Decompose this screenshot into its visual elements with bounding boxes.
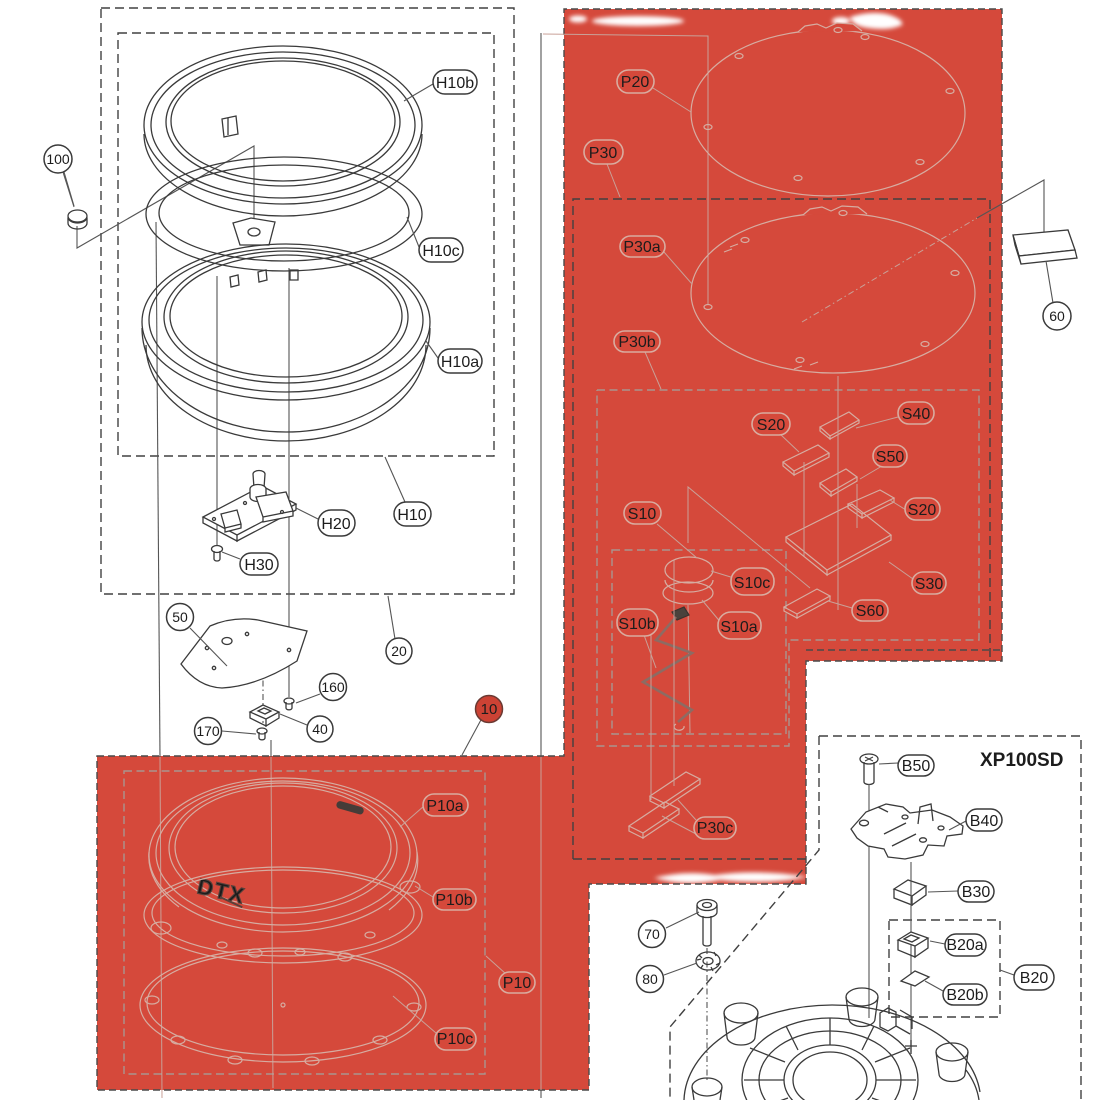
svg-text:P10b: P10b	[435, 892, 472, 909]
svg-text:H10c: H10c	[422, 243, 459, 260]
svg-text:XP100SD: XP100SD	[980, 750, 1063, 771]
svg-text:70: 70	[644, 926, 660, 942]
svg-text:H30: H30	[244, 557, 273, 574]
svg-text:S30: S30	[915, 576, 944, 593]
svg-text:S50: S50	[876, 449, 905, 466]
svg-text:H10a: H10a	[441, 354, 479, 371]
svg-text:P10c: P10c	[437, 1031, 473, 1048]
svg-text:P30c: P30c	[697, 820, 733, 837]
svg-text:B50: B50	[902, 758, 931, 775]
svg-text:50: 50	[172, 609, 188, 625]
svg-text:10: 10	[481, 701, 498, 718]
svg-text:P30a: P30a	[623, 239, 660, 256]
svg-text:B20: B20	[1020, 970, 1049, 987]
svg-text:H10b: H10b	[436, 75, 474, 92]
svg-text:20: 20	[391, 643, 407, 659]
svg-text:60: 60	[1049, 308, 1065, 324]
svg-text:170: 170	[196, 723, 220, 739]
svg-text:S10b: S10b	[618, 616, 655, 633]
svg-text:H10: H10	[397, 507, 426, 524]
svg-text:B20a: B20a	[946, 937, 983, 954]
svg-text:B40: B40	[970, 813, 999, 830]
svg-text:H20: H20	[321, 516, 350, 533]
svg-text:B20b: B20b	[946, 987, 983, 1004]
svg-text:B30: B30	[962, 884, 991, 901]
svg-text:S40: S40	[902, 406, 931, 423]
svg-text:40: 40	[312, 721, 328, 737]
svg-text:S10: S10	[628, 506, 657, 523]
svg-text:P10a: P10a	[426, 798, 463, 815]
svg-text:P10: P10	[503, 975, 532, 992]
svg-text:P30: P30	[589, 145, 618, 162]
svg-text:P30b: P30b	[618, 334, 655, 351]
svg-text:100: 100	[46, 151, 70, 167]
svg-text:160: 160	[321, 679, 345, 695]
svg-text:S10c: S10c	[734, 575, 770, 592]
svg-text:80: 80	[642, 971, 658, 987]
svg-text:P20: P20	[621, 74, 650, 91]
svg-text:S60: S60	[856, 603, 885, 620]
svg-text:S20: S20	[757, 417, 786, 434]
svg-text:S20: S20	[908, 502, 937, 519]
svg-text:S10a: S10a	[720, 619, 757, 636]
